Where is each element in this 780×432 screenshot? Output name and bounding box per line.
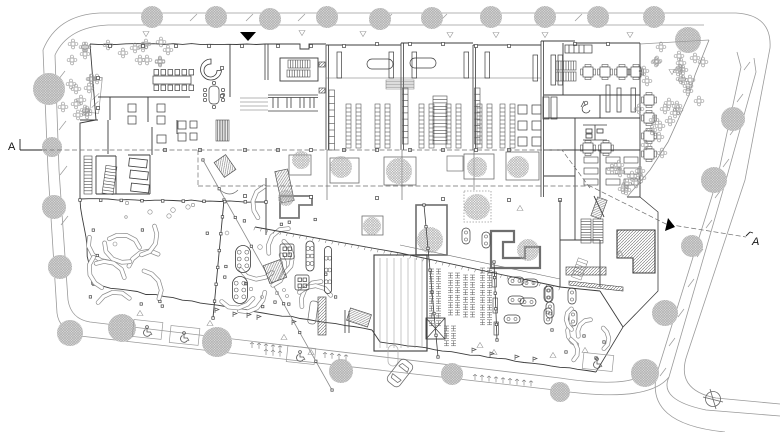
svg-text:A: A (751, 236, 759, 248)
svg-text:A: A (8, 141, 16, 153)
